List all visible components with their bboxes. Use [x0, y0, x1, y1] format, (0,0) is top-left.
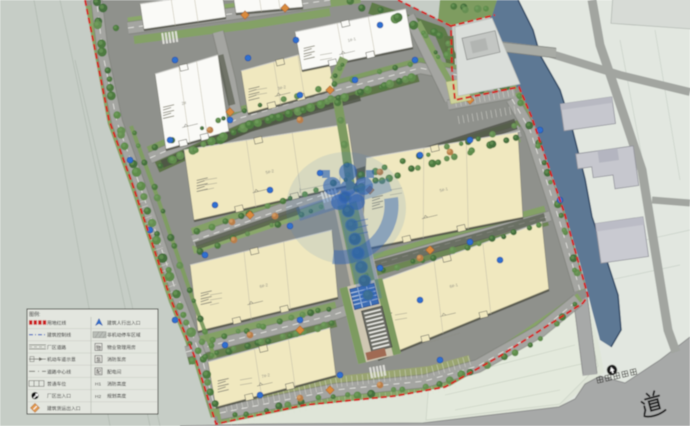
svg-text:图例:: 图例:	[29, 311, 40, 318]
svg-text:消防高度: 消防高度	[107, 381, 126, 388]
svg-text:道路中心线: 道路中心线	[47, 368, 71, 375]
svg-text:非机动停车区域: 非机动停车区域	[107, 332, 141, 339]
svg-text:厂区道路: 厂区道路	[47, 344, 66, 351]
svg-text:配电间: 配电间	[107, 368, 122, 375]
svg-text:物业管理用房: 物业管理用房	[107, 344, 136, 351]
svg-text:H2: H2	[95, 394, 101, 400]
svg-text:建筑货运出入口: 建筑货运出入口	[47, 405, 81, 412]
svg-text:H1: H1	[95, 382, 101, 388]
svg-text:规划高度: 规划高度	[107, 393, 126, 400]
svg-text:普通车位: 普通车位	[47, 381, 66, 388]
svg-text:消防泵房: 消防泵房	[107, 356, 126, 363]
svg-text:用地红线: 用地红线	[47, 320, 66, 327]
svg-text:配: 配	[96, 370, 101, 376]
svg-text:建筑人行出入口: 建筑人行出入口	[107, 320, 141, 327]
svg-text:泵: 泵	[96, 358, 101, 364]
svg-text:建筑控制线: 建筑控制线	[47, 332, 71, 339]
svg-text:物: 物	[96, 344, 101, 351]
svg-text:厂区出入口: 厂区出入口	[47, 393, 71, 400]
svg-text:机动车道示意: 机动车道示意	[47, 356, 76, 363]
